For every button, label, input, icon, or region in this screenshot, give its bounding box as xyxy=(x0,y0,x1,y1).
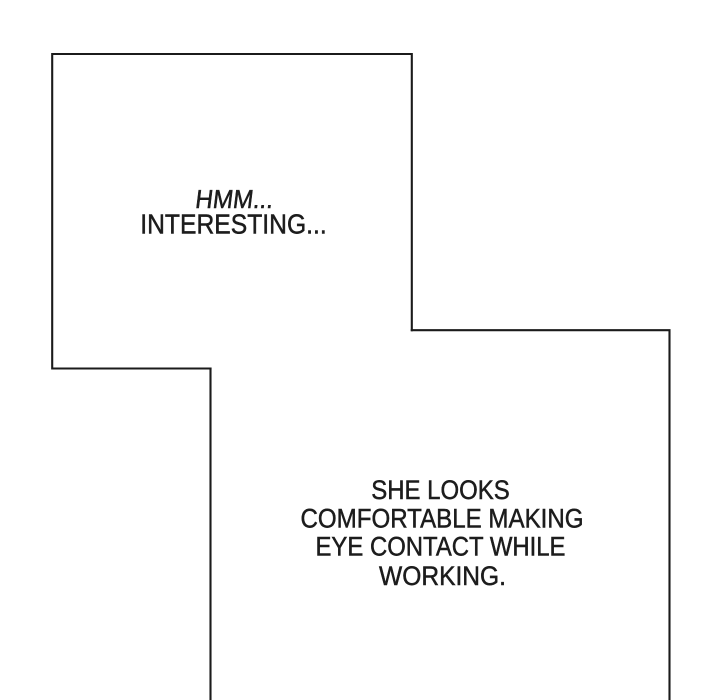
svg-text:WORKING.: WORKING. xyxy=(379,561,506,591)
svg-text:SHE LOOKS: SHE LOOKS xyxy=(371,475,510,505)
svg-text:EYE CONTACT WHILE: EYE CONTACT WHILE xyxy=(316,532,566,562)
svg-text:INTERESTING...: INTERESTING... xyxy=(140,209,327,240)
svg-text:COMFORTABLE MAKING: COMFORTABLE MAKING xyxy=(301,504,584,534)
